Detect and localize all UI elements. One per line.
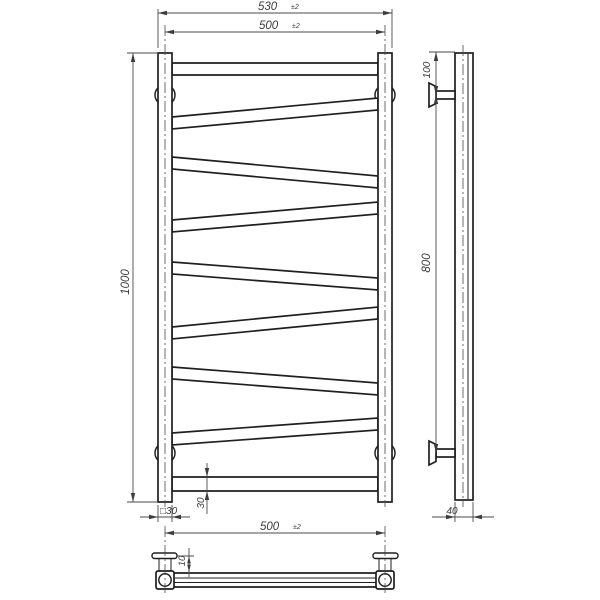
dim-label: 500 [260,521,280,533]
rung-zigzag-3 [172,202,378,232]
rung-zigzag-1 [172,98,378,129]
wall-flange-plate [152,553,177,559]
dim-post-section-30: □30 [140,505,190,522]
dim-label: 500 [259,20,279,32]
wall-flange-plate [373,553,398,559]
dim-label: 10 [177,555,188,566]
drawing-sheet: 530 ±2 500 ±2 1000 □30 [0,0,600,600]
bracket-stem [436,91,455,99]
rung-bottom-horizontal [172,477,378,491]
dim-label: 800 [421,253,433,273]
rung-top-horizontal [172,63,378,75]
dim-top-view-500: 500 ±2 [165,521,385,535]
dim-axis-width-500: 500 ±2 [165,20,385,34]
front-view [155,25,395,507]
dim-height-1000: 1000 [120,53,158,502]
dim-label: 30 [196,497,207,509]
rung-zigzag-2 [172,157,378,188]
top-view-right-end [373,553,398,589]
dim-bracket-spacing-800: 800 [421,95,438,453]
dim-top-to-bracket-100: 100 [422,52,455,95]
dim-tolerance: ±2 [293,524,301,531]
side-bracket-lower [429,441,455,465]
dim-label: 100 [422,61,433,78]
rung-zigzag-4 [172,262,378,290]
dim-label: □30 [160,506,178,517]
dim-label: 1000 [120,269,132,295]
side-bracket-upper [429,83,455,107]
dim-tolerance: ±2 [291,4,299,11]
technical-drawing-svg: 530 ±2 500 ±2 1000 □30 [0,0,600,600]
dim-label: 530 [258,1,278,13]
rung-zigzag-6 [172,367,378,395]
side-profile-bar [455,53,473,500]
rung-zigzag-7 [172,418,378,445]
rung-zigzag-5 [172,307,378,339]
dim-label: 40 [446,506,458,517]
dim-tolerance: ±2 [292,23,300,30]
bracket-stem [436,449,455,457]
top-view-left-end [152,553,177,589]
